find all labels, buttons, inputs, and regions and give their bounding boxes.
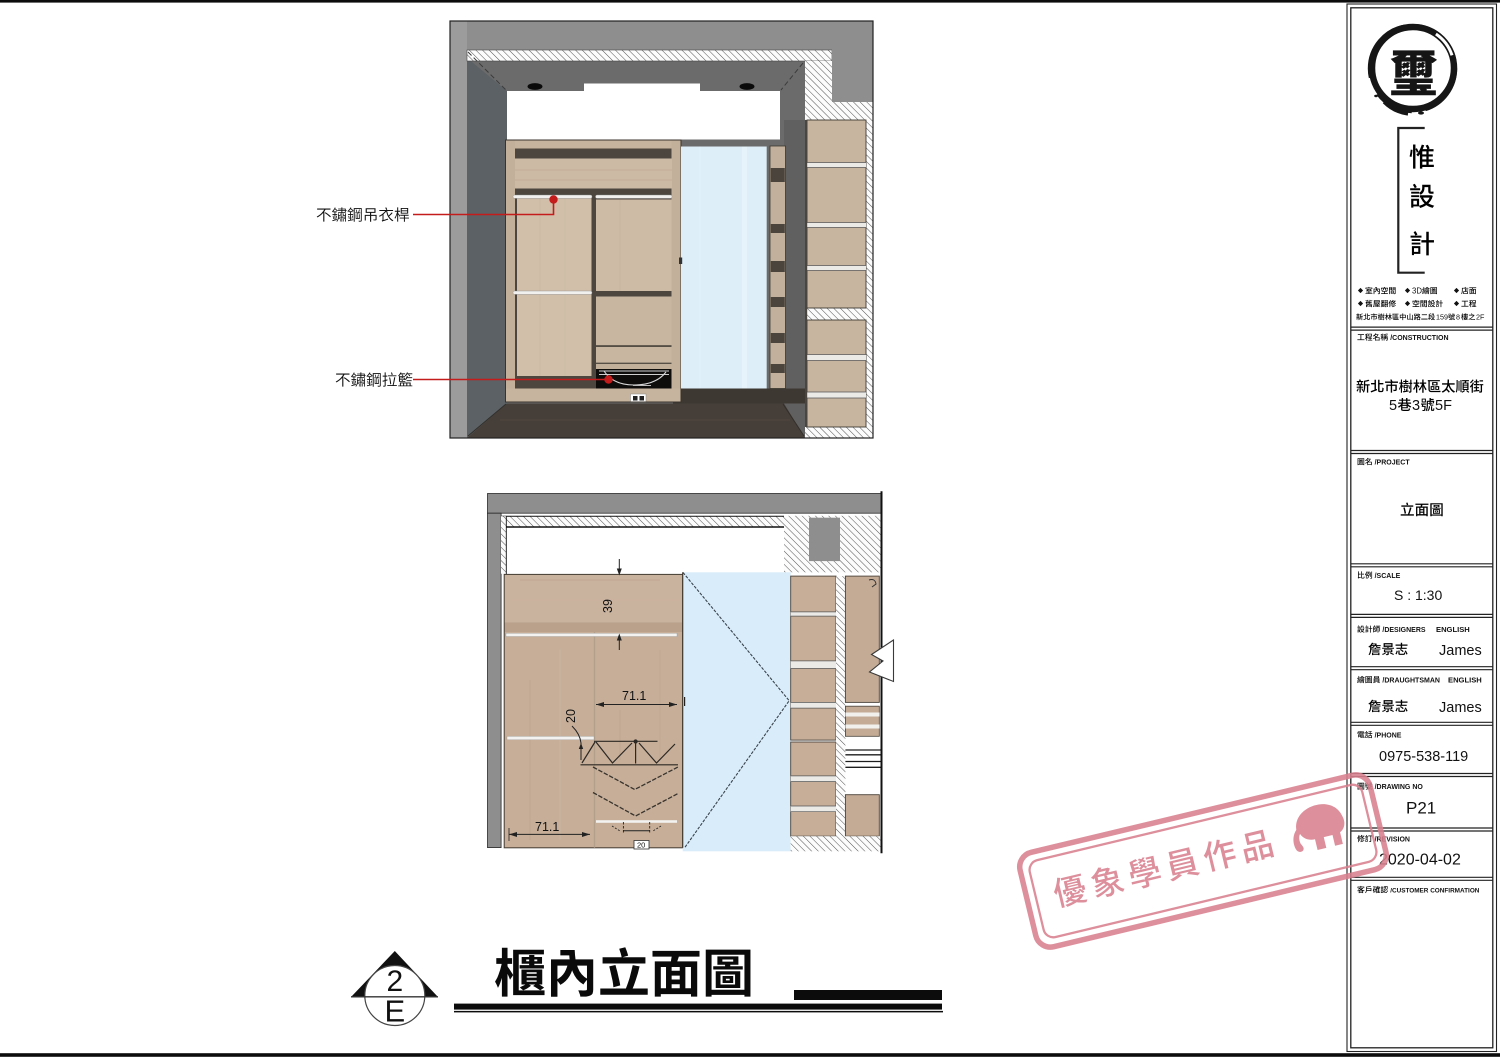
svg-text:S : 1:30: S : 1:30 (1394, 587, 1442, 603)
svg-text:/CONSTRUCTION: /CONSTRUCTION (1390, 335, 1448, 342)
svg-text:20: 20 (564, 709, 578, 723)
svg-text:E: E (384, 994, 405, 1029)
svg-text:/DESIGNERS: /DESIGNERS (1382, 627, 1426, 634)
svg-text:/DRAUGHTSMAN: /DRAUGHTSMAN (1382, 678, 1440, 685)
svg-text:71.1: 71.1 (622, 689, 646, 703)
svg-text:ENGLISH: ENGLISH (1448, 676, 1482, 685)
svg-text:/DRAWING NO: /DRAWING NO (1375, 784, 1424, 791)
svg-text:20: 20 (637, 841, 645, 850)
svg-text:James: James (1439, 643, 1482, 659)
svg-text:James: James (1439, 700, 1482, 716)
svg-text:5F: 5F (1435, 398, 1452, 414)
svg-text:/CUSTOMER CONFIRMATION: /CUSTOMER CONFIRMATION (1390, 888, 1480, 895)
svg-text:0975-538-119: 0975-538-119 (1379, 749, 1468, 765)
svg-text:/PHONE: /PHONE (1375, 733, 1402, 740)
svg-text:8: 8 (1456, 313, 1460, 322)
svg-text:71.1: 71.1 (535, 820, 559, 834)
svg-text:ENGLISH: ENGLISH (1436, 625, 1470, 634)
svg-text:2F: 2F (1476, 313, 1485, 322)
svg-text:3: 3 (1412, 398, 1420, 414)
svg-text:39: 39 (601, 599, 615, 613)
svg-text:2020-04-02: 2020-04-02 (1379, 852, 1461, 869)
svg-text:P21: P21 (1406, 799, 1436, 818)
svg-text:/SCALE: /SCALE (1375, 573, 1401, 580)
svg-text:/PROJECT: /PROJECT (1375, 460, 1411, 467)
svg-text:5: 5 (1389, 398, 1397, 414)
svg-text:3D: 3D (1412, 287, 1422, 296)
svg-text:159: 159 (1436, 313, 1448, 322)
